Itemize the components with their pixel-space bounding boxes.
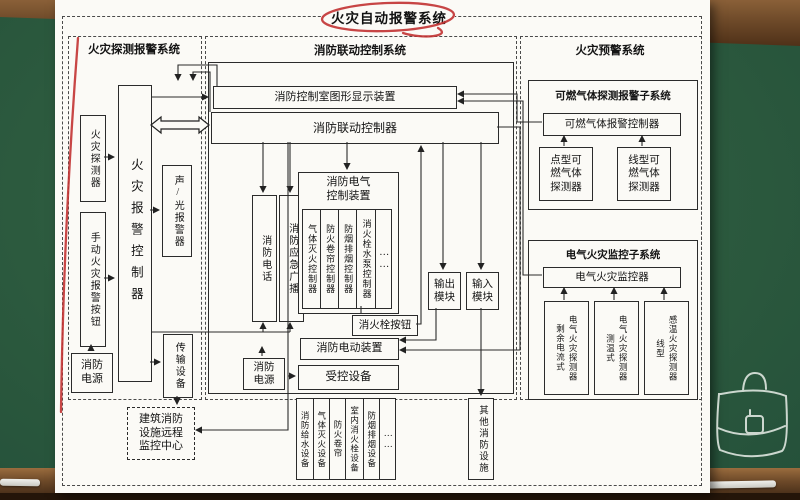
remote-monitoring-center-label: 建筑消防设施远程监控中心	[138, 413, 184, 454]
input-module-label: 输入模块	[471, 278, 493, 304]
box-linkage-controller: 消防联动控制器	[211, 112, 499, 144]
diagram-paper: 火灾自动报警系统 火灾探测报警系统 火灾探测器 手动火灾报警按钮 消防电源 火灾…	[55, 0, 710, 493]
residual-current-name-label: 电气火灾探测器	[568, 315, 579, 382]
graphic-display-label: 消防控制室图形显示装置	[275, 91, 396, 105]
box-sound-light-alarm: 声/光报警器	[162, 165, 192, 257]
box-residual-current-detector: 剩余电流式 电气火灾探测器	[544, 301, 589, 395]
subsystem-gas-detection: 可燃气体探测报警子系统 可燃气体报警控制器 点型可燃气体探测器 线型可燃气体探测…	[528, 80, 698, 210]
gas-subsystem-label: 可燃气体探测报警子系统	[529, 88, 697, 103]
box-gas-extinguishing-controller: 气体灭火控制器	[302, 209, 321, 309]
sound-light-alarm-label: 声/光报警器	[171, 175, 184, 248]
temperature-type-label: 测温式	[605, 334, 616, 363]
fire-telephone-label: 消防电话	[258, 235, 271, 283]
transmission-equipment-label: 传输设备	[172, 342, 185, 390]
residual-current-type-label: 剩余电流式	[555, 324, 566, 372]
fire-electric-device-label: 消防电动装置	[317, 342, 383, 356]
box-smoke-exhaust-controller: 防烟排烟控制器	[338, 209, 357, 309]
box-fire-electric-device: 消防电动装置	[300, 338, 399, 360]
line-gas-detector-label: 线型可燃气体探测器	[627, 154, 662, 193]
electric-group-ellipsis: ……	[375, 209, 392, 309]
emergency-broadcast-label: 消防应急广播	[285, 223, 298, 295]
box-hydrant-button: 消火栓按钮	[352, 315, 418, 336]
diagram-title: 火灾自动报警系统	[323, 5, 455, 29]
chalk-piece-left	[0, 479, 40, 487]
temperature-name-label: 电气火灾探测器	[618, 315, 629, 382]
line-heat-name-label: 感温火灾探测器	[668, 315, 679, 382]
box-fire-alarm-controller: 火灾报警控制器	[118, 85, 152, 382]
chalk-piece-right	[702, 480, 776, 488]
box-transmission-equipment: 传输设备	[163, 334, 193, 398]
box-gas-alarm-controller: 可燃气体报警控制器	[543, 113, 681, 136]
box-manual-call-point: 手动火灾报警按钮	[80, 212, 106, 347]
box-fire-power-mid: 消防电源	[243, 358, 285, 390]
section-detection-alarm-header: 火灾探测报警系统	[71, 41, 197, 57]
box-graphic-display: 消防控制室图形显示装置	[213, 86, 457, 109]
box-indoor-hydrant-equipment: 室内消火栓设备	[345, 398, 364, 480]
hydrant-button-label: 消火栓按钮	[359, 319, 412, 332]
box-hydrant-pump-controller: 消火栓水泵控制器	[356, 209, 376, 309]
box-output-module: 输出模块	[428, 272, 461, 310]
equipment-row: 消防给水设备 气体灭火设备 防火卷帘 室内消火栓设备 防烟排烟设备 ……	[296, 398, 396, 478]
box-water-supply-equipment: 消防给水设备	[296, 398, 314, 480]
box-input-module: 输入模块	[466, 272, 499, 310]
box-fire-shutter: 防火卷帘	[329, 398, 346, 480]
fire-alarm-controller-label: 火灾报警控制器	[127, 158, 143, 309]
box-line-gas-detector: 线型可燃气体探测器	[617, 147, 671, 201]
box-line-heat-detector: 线型 感温火灾探测器	[644, 301, 689, 395]
box-gas-extinguishing-equipment: 气体灭火设备	[313, 398, 331, 480]
gas-alarm-controller-label: 可燃气体报警控制器	[565, 118, 660, 131]
electric-control-sub-boxes: 气体灭火控制器 防火卷帘控制器 防烟排烟控制器 消火栓水泵控制器 ……	[302, 209, 395, 307]
other-fire-facilities-label: 其他消防设施	[475, 405, 487, 474]
chalk-bag-drawing	[705, 362, 800, 467]
subsystem-electric-fire: 电气火灾监控子系统 电气火灾监控器 剩余电流式 电气火灾探测器 测温式 电气火灾…	[528, 240, 698, 400]
box-fire-detector: 火灾探测器	[80, 115, 106, 202]
section-linkage-control-header: 消防联动控制系统	[285, 42, 435, 58]
box-fire-telephone: 消防电话	[252, 195, 277, 322]
box-controlled-equipment: 受控设备	[298, 365, 399, 390]
controlled-equipment-label: 受控设备	[326, 370, 372, 384]
linkage-controller-label: 消防联动控制器	[313, 121, 397, 136]
section-early-warning-header: 火灾预警系统	[560, 42, 660, 58]
box-remote-monitoring-center: 建筑消防设施远程监控中心	[127, 407, 195, 460]
electric-subsystem-label: 电气火灾监控子系统	[529, 247, 697, 262]
box-fire-power-left: 消防电源	[71, 353, 113, 393]
fire-power-mid-label: 消防电源	[252, 361, 275, 387]
box-fire-shutter-controller: 防火卷帘控制器	[320, 209, 339, 309]
output-module-label: 输出模块	[433, 278, 455, 304]
fire-detector-label: 火灾探测器	[87, 129, 100, 189]
box-point-gas-detector: 点型可燃气体探测器	[539, 147, 593, 201]
point-gas-detector-label: 点型可燃气体探测器	[549, 154, 584, 193]
group-electric-control: 消防电气控制装置 气体灭火控制器 防火卷帘控制器 防烟排烟控制器 消火栓水泵控制…	[298, 172, 399, 314]
box-temperature-type-detector: 测温式 电气火灾探测器	[594, 301, 639, 395]
box-electric-fire-monitor: 电气火灾监控器	[543, 267, 681, 288]
electric-control-group-header: 消防电气控制装置	[299, 176, 398, 204]
manual-call-point-label: 手动火灾报警按钮	[87, 232, 100, 328]
tray-lip	[0, 493, 800, 500]
box-smoke-exhaust-equipment: 防烟排烟设备	[363, 398, 381, 480]
blackboard-scene: 火灾自动报警系统 火灾探测报警系统 火灾探测器 手动火灾报警按钮 消防电源 火灾…	[0, 0, 800, 500]
fire-power-left-label: 消防电源	[80, 359, 104, 387]
electric-fire-monitor-label: 电气火灾监控器	[575, 271, 649, 284]
equipment-row-ellipsis: ……	[379, 398, 396, 480]
box-other-fire-facilities: 其他消防设施	[468, 398, 494, 480]
line-heat-type-label: 线型	[655, 339, 666, 358]
